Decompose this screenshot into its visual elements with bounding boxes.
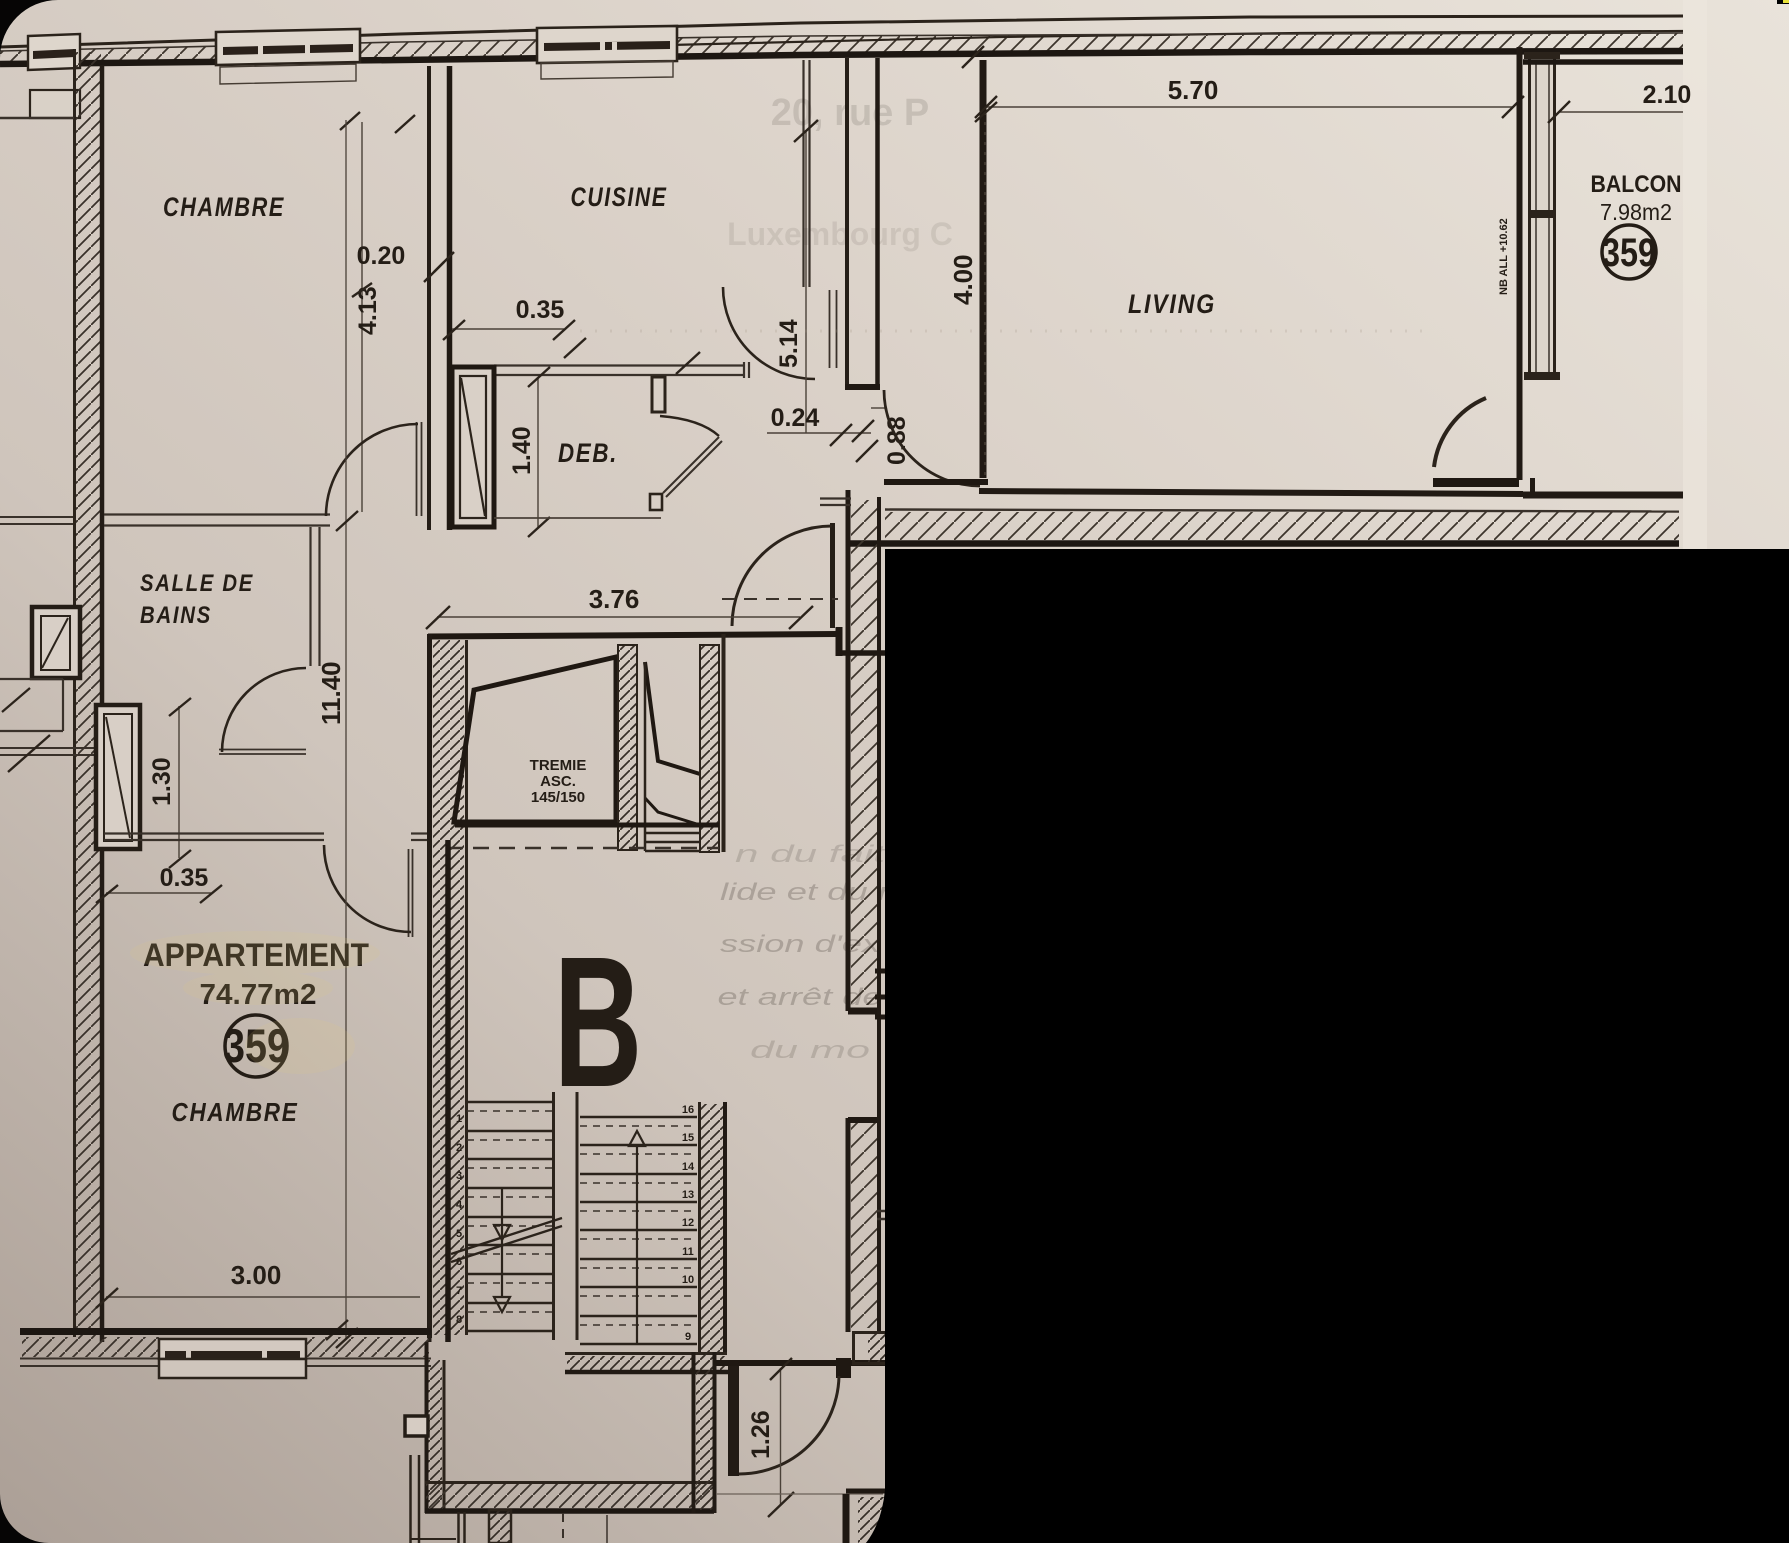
svg-text:11: 11: [682, 1246, 694, 1258]
svg-text:5.70: 5.70: [1168, 75, 1219, 105]
svg-text:7: 7: [456, 1285, 462, 1297]
svg-text:CUISINE: CUISINE: [571, 182, 668, 212]
svg-text:4: 4: [456, 1199, 463, 1211]
svg-text:3: 3: [456, 1170, 462, 1182]
svg-text:7.98m2: 7.98m2: [1600, 199, 1672, 225]
svg-text:1: 1: [456, 1113, 462, 1125]
svg-text:NB ALL +10.62: NB ALL +10.62: [1498, 218, 1510, 295]
svg-text:359: 359: [1602, 231, 1656, 275]
svg-text:145/150: 145/150: [531, 789, 585, 806]
svg-text:n du fait: n du fait: [735, 841, 887, 868]
svg-text:5.14: 5.14: [775, 319, 803, 368]
svg-text:BAINS: BAINS: [140, 602, 212, 629]
svg-text:10: 10: [682, 1274, 694, 1286]
svg-text:du mo: du mo: [750, 1037, 870, 1064]
svg-text:15: 15: [682, 1132, 694, 1144]
svg-text:11.40: 11.40: [316, 661, 346, 725]
svg-text:0.35: 0.35: [516, 296, 565, 324]
svg-text:CHAMBRE: CHAMBRE: [172, 1097, 299, 1127]
svg-text:5: 5: [456, 1228, 462, 1240]
svg-text:SALLE DE: SALLE DE: [140, 570, 254, 597]
svg-text:BALCON: BALCON: [1591, 171, 1682, 198]
svg-text:12: 12: [682, 1217, 694, 1229]
svg-text:3.76: 3.76: [589, 584, 640, 614]
svg-text:0.24: 0.24: [771, 404, 820, 432]
svg-text:LIVING: LIVING: [1128, 289, 1216, 319]
svg-text:1.40: 1.40: [508, 426, 536, 475]
svg-text:1.26: 1.26: [747, 1410, 775, 1459]
svg-text:1.30: 1.30: [148, 757, 176, 806]
svg-text:DEB.: DEB.: [558, 438, 618, 468]
svg-text:4.00: 4.00: [948, 254, 978, 305]
svg-text:13: 13: [682, 1189, 694, 1201]
svg-text:CHAMBRE: CHAMBRE: [163, 192, 285, 222]
svg-text:3.00: 3.00: [231, 1260, 282, 1290]
svg-text:0.35: 0.35: [160, 864, 209, 892]
svg-text:2.10: 2.10: [1643, 81, 1692, 109]
svg-text:0.20: 0.20: [357, 242, 406, 270]
svg-text:ssion d'ex: ssion d'ex: [720, 931, 881, 958]
svg-text:et arrêt de: et arrêt de: [718, 984, 883, 1011]
svg-text:Luxembourg C: Luxembourg C: [727, 216, 953, 252]
svg-text:20, rue P: 20, rue P: [771, 92, 929, 134]
svg-text:lide et du r: lide et du r: [720, 879, 892, 906]
svg-text:ASC.: ASC.: [540, 773, 576, 790]
svg-text:14: 14: [682, 1161, 695, 1173]
svg-text:16: 16: [682, 1104, 694, 1116]
svg-text:B: B: [554, 918, 643, 1126]
svg-text:9: 9: [685, 1331, 691, 1343]
svg-text:TREMIE: TREMIE: [530, 757, 587, 774]
svg-text:8: 8: [456, 1314, 462, 1326]
svg-text:2: 2: [456, 1142, 462, 1154]
